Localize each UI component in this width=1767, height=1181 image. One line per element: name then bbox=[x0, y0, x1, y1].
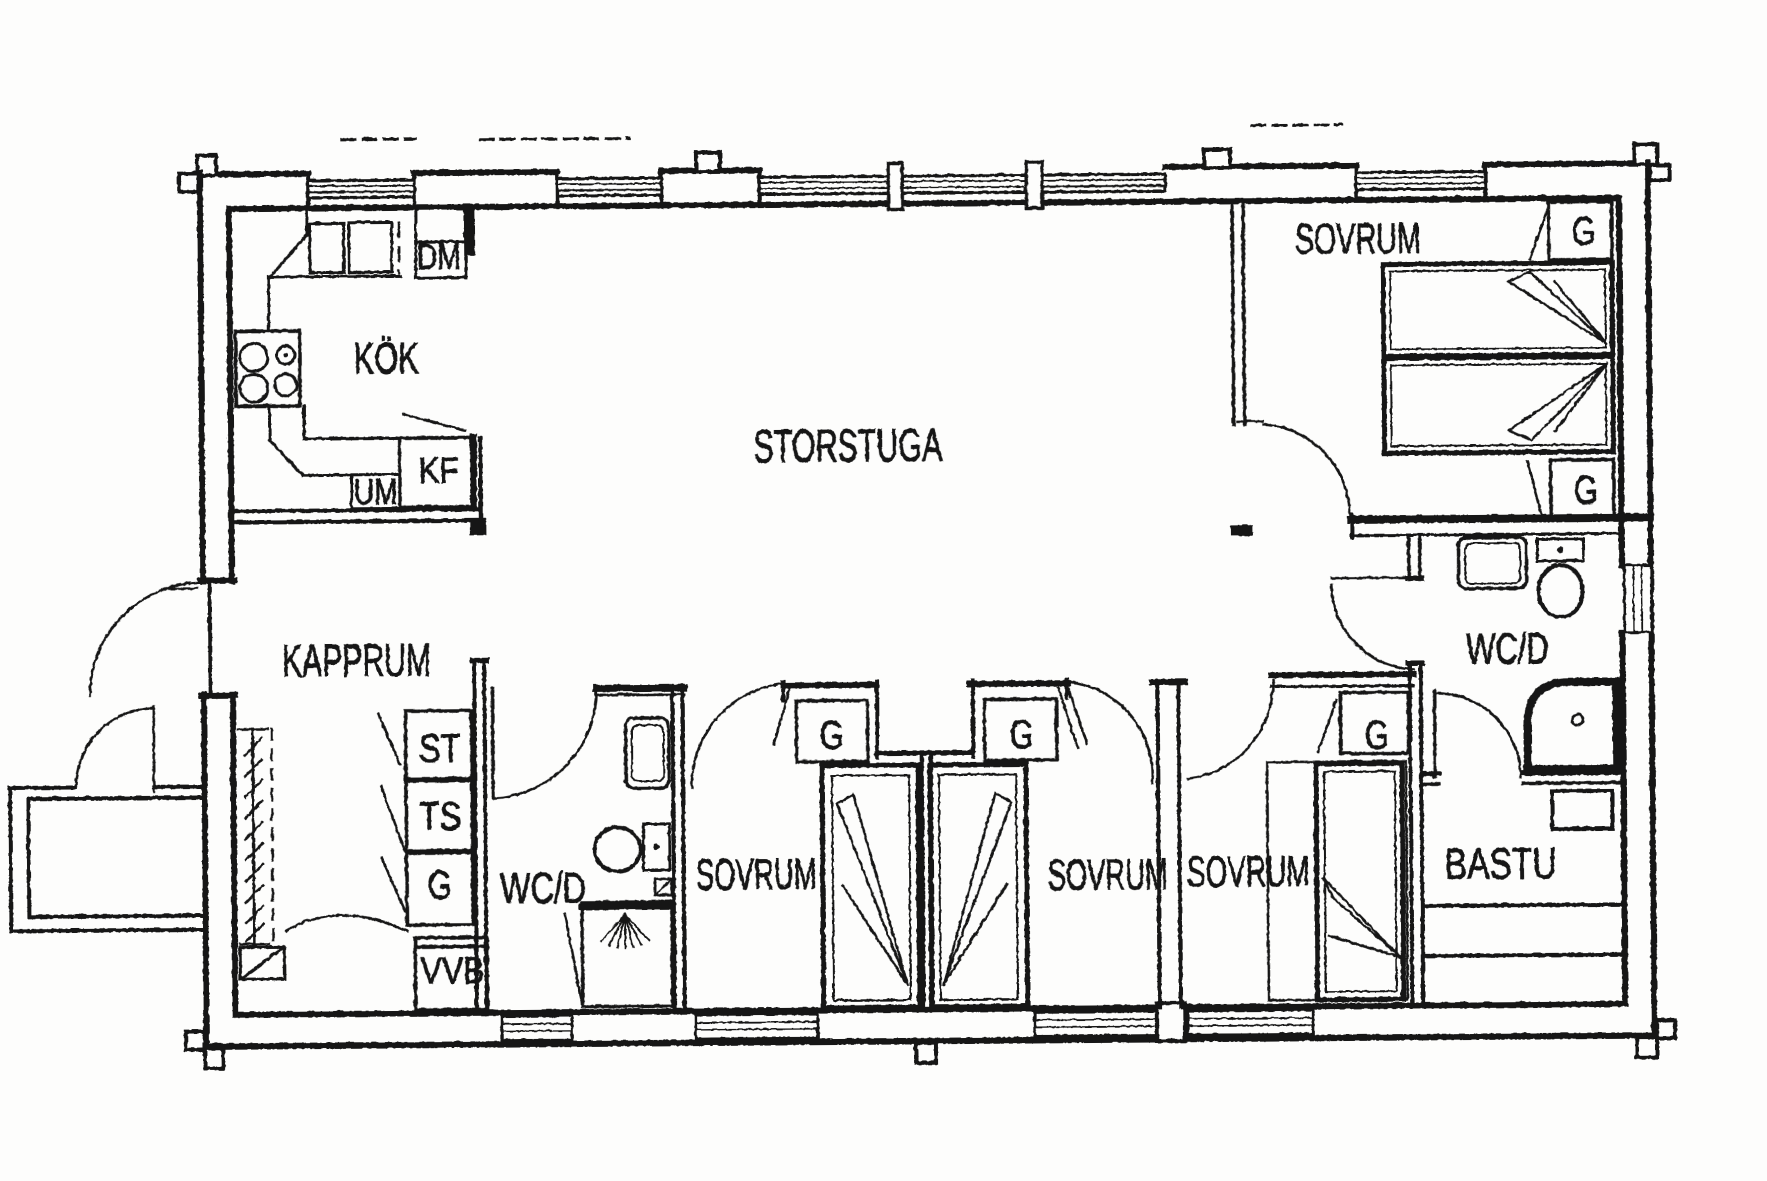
svg-text:TS: TS bbox=[418, 794, 460, 838]
svg-text:G: G bbox=[427, 863, 451, 907]
svg-text:SOVRUM: SOVRUM bbox=[1186, 846, 1309, 896]
svg-text:KF: KF bbox=[418, 449, 458, 490]
svg-text:WC/D: WC/D bbox=[499, 863, 585, 913]
svg-text:STORSTUGA: STORSTUGA bbox=[753, 418, 943, 471]
svg-text:KAPPRUM: KAPPRUM bbox=[281, 633, 430, 686]
svg-text:SOVRUM: SOVRUM bbox=[695, 849, 816, 899]
svg-text:G: G bbox=[1364, 713, 1388, 757]
svg-text:SOVRUM: SOVRUM bbox=[1047, 849, 1167, 899]
svg-text:G: G bbox=[1009, 712, 1033, 756]
svg-text:WC/D: WC/D bbox=[1465, 623, 1548, 673]
svg-text:UM: UM bbox=[353, 470, 397, 511]
svg-text:SOVRUM: SOVRUM bbox=[1294, 213, 1420, 263]
svg-text:DM: DM bbox=[416, 235, 460, 276]
svg-text:G: G bbox=[819, 713, 843, 757]
svg-text:BASTU: BASTU bbox=[1444, 838, 1556, 888]
svg-text:KÖK: KÖK bbox=[353, 333, 418, 383]
svg-text:G: G bbox=[1573, 468, 1597, 512]
svg-text:ST: ST bbox=[418, 726, 460, 770]
svg-text:G: G bbox=[1571, 209, 1595, 253]
